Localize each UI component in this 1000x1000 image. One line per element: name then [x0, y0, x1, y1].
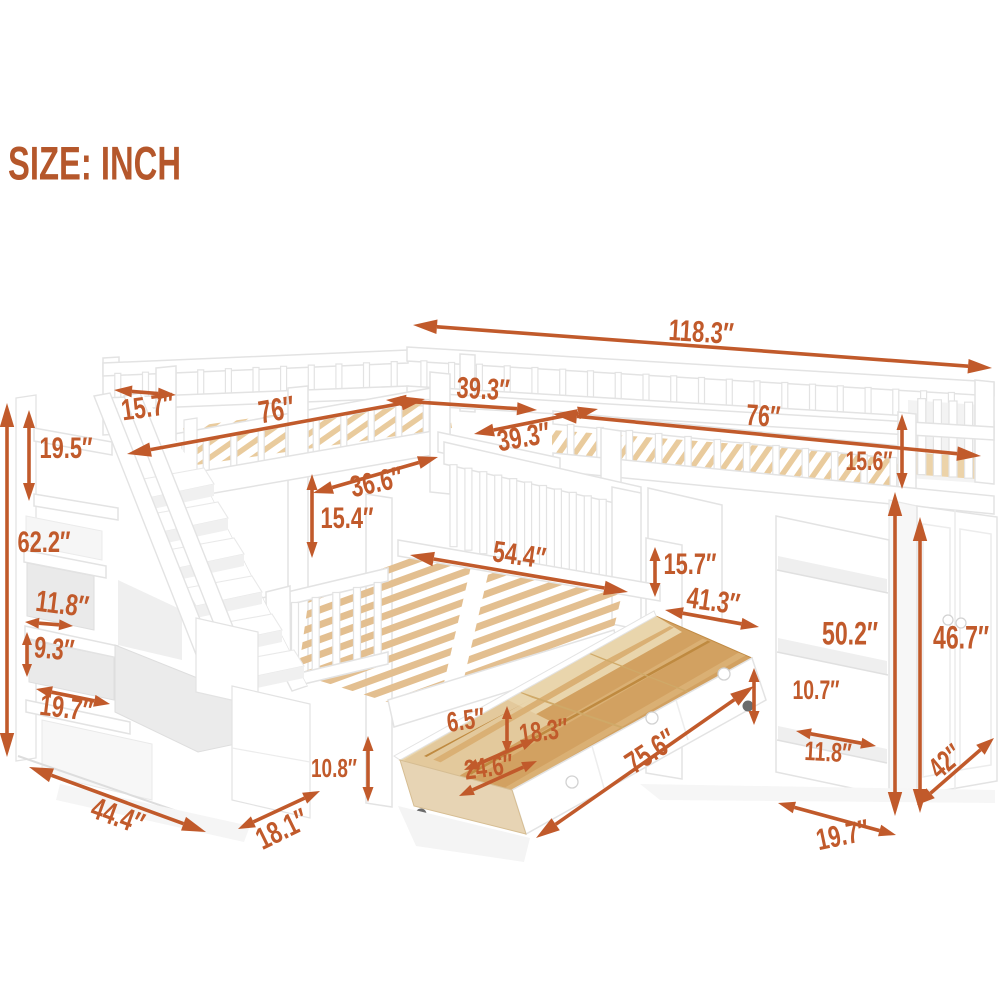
svg-text:50.2″: 50.2″: [822, 615, 878, 651]
svg-text:9.3″: 9.3″: [33, 631, 76, 667]
svg-text:118.3″: 118.3″: [668, 314, 735, 351]
svg-text:11.8″: 11.8″: [34, 585, 91, 624]
svg-text:10.7″: 10.7″: [793, 675, 840, 705]
svg-text:11.8″: 11.8″: [804, 736, 853, 768]
svg-text:39.3″: 39.3″: [456, 372, 511, 408]
svg-text:SIZE: INCH: SIZE: INCH: [8, 136, 181, 189]
svg-text:19.7″: 19.7″: [38, 689, 95, 728]
svg-text:19.5″: 19.5″: [40, 432, 93, 465]
svg-text:15.4″: 15.4″: [321, 502, 374, 535]
svg-text:15.6″: 15.6″: [846, 446, 893, 476]
svg-text:46.7″: 46.7″: [933, 619, 989, 655]
svg-text:15.7″: 15.7″: [664, 548, 717, 581]
svg-text:76″: 76″: [256, 389, 298, 431]
svg-text:62.2″: 62.2″: [18, 526, 71, 559]
svg-text:10.8″: 10.8″: [311, 753, 357, 783]
svg-text:6.5″: 6.5″: [445, 702, 487, 738]
svg-text:76″: 76″: [745, 399, 781, 434]
